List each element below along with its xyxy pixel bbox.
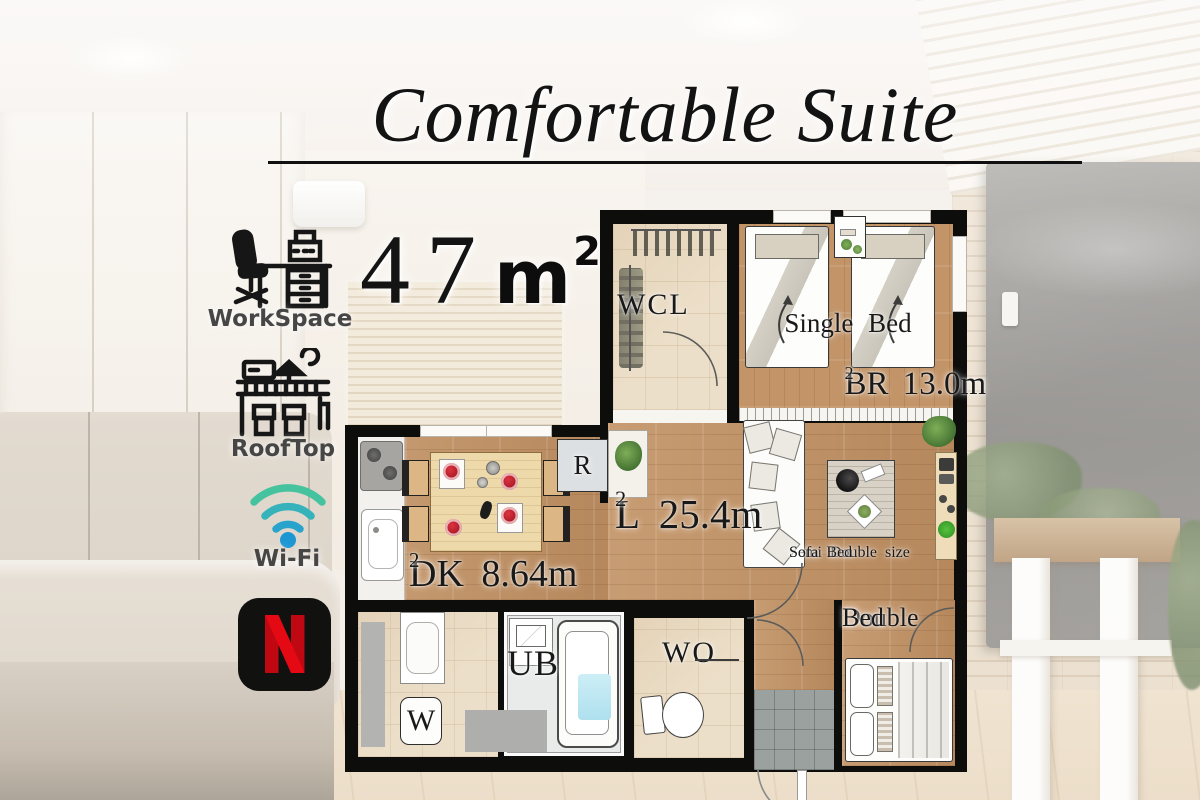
sofa-cushion	[748, 461, 778, 491]
sofa-cushion	[769, 428, 802, 461]
label-single-bed: Single Bed	[741, 308, 955, 339]
striped-cushion	[877, 712, 893, 752]
teapot	[477, 477, 488, 488]
closet-rod	[631, 229, 721, 231]
label-dining-kitchen-area: DK 8.64m2	[409, 552, 419, 596]
stove-burner	[383, 466, 397, 480]
netflix-icon	[237, 597, 332, 692]
sink-faucet	[373, 527, 379, 533]
table-plant	[858, 505, 871, 518]
refrigerator-label: R	[573, 450, 591, 481]
label-unit-bath: UB	[507, 642, 559, 684]
red-plate	[501, 473, 518, 490]
kitchen-window	[420, 425, 552, 437]
potted-plant	[615, 441, 642, 471]
dk-area-exp: 2	[409, 548, 419, 572]
listing-poster: { "title": "Comfortable Suite", "area": …	[0, 0, 1200, 800]
label-living-area: L 25.4m2	[615, 490, 626, 538]
bedroom-side-window	[952, 236, 967, 312]
double-bed-line2: Bed	[842, 604, 884, 631]
washbasin-bowl	[406, 622, 439, 674]
rooftop-building-icon	[232, 348, 334, 438]
dining-chair	[403, 506, 429, 542]
striped-cushion	[877, 666, 893, 706]
kitchen-sink	[361, 509, 404, 581]
bathtub-inner	[565, 631, 609, 735]
amenity-label-workspace: WorkSpace	[195, 306, 365, 332]
toilet-bowl	[662, 692, 704, 738]
bathtub-water	[578, 674, 611, 720]
bedroom-area-exp: 2	[844, 363, 853, 383]
page-title: Comfortable Suite	[250, 70, 1080, 160]
label-wcl: WCL	[617, 288, 690, 322]
wo-leader-line	[695, 659, 739, 661]
hanging-clothes-icon	[633, 230, 719, 256]
dining-chair	[543, 506, 569, 542]
living-area-text: L 25.4m	[615, 490, 762, 538]
washer-label: W	[407, 704, 435, 738]
amenity-label-rooftop: RoofTop	[198, 436, 368, 462]
title-underline	[268, 161, 1082, 164]
entrance-door-leaf	[797, 770, 807, 800]
bedroom-window	[773, 210, 831, 223]
plant-alcove	[608, 430, 648, 498]
bedroom-area-text: BR 13.0m	[844, 366, 986, 403]
bed-pillow	[850, 712, 874, 756]
living-area-exp: 2	[615, 486, 626, 511]
side-counter-desk	[935, 452, 957, 560]
bed-pillow	[861, 234, 925, 259]
bed-duvet	[898, 662, 949, 758]
wifi-icon	[246, 476, 330, 548]
red-plate	[445, 519, 462, 536]
dining-chair	[403, 460, 429, 496]
kettle	[486, 461, 500, 475]
label-bedroom-area: BR 13.0m2	[739, 366, 959, 403]
nightstand-plant	[853, 245, 862, 254]
washer-box: W	[400, 697, 442, 745]
nightstand-plant	[841, 239, 852, 250]
floor-plan: R W WCL Single Bed BR 13.0m2 L 25.4m2 DK…	[345, 210, 967, 772]
red-plate	[443, 463, 460, 480]
counter-plant	[938, 521, 955, 538]
black-tray	[836, 469, 859, 492]
bathtub	[557, 620, 619, 748]
washroom-shelf	[361, 622, 385, 747]
refrigerator-box: R	[557, 439, 608, 492]
counter-appliance	[939, 474, 954, 484]
table-mat	[861, 463, 886, 482]
stove-burner	[367, 448, 381, 462]
red-plate	[501, 507, 518, 524]
sink-basin	[368, 519, 398, 569]
entrance-tile-genkan	[754, 690, 834, 770]
folding-door	[613, 410, 727, 423]
counter-burner	[947, 505, 955, 513]
label-storage-wo: WO	[634, 636, 744, 670]
condiment-set	[478, 500, 493, 520]
counter-burner	[939, 495, 947, 503]
coffee-table	[827, 460, 895, 538]
nightstand	[834, 216, 866, 258]
entrance-hall	[754, 600, 834, 690]
bed-pillow	[755, 234, 819, 259]
bath-mat	[465, 710, 547, 752]
dk-area-text: DK 8.64m	[409, 552, 577, 596]
gas-stove	[360, 441, 403, 491]
nightstand-tray	[840, 229, 856, 236]
counter-appliance	[939, 458, 954, 471]
sofa-label-line2: Sofa Bed	[789, 544, 852, 562]
washbasin	[400, 612, 445, 684]
workspace-desk-icon	[226, 226, 334, 310]
dining-table	[430, 452, 542, 552]
single-bed	[745, 226, 829, 368]
bed-pillow	[850, 664, 874, 708]
double-bed	[845, 658, 953, 762]
